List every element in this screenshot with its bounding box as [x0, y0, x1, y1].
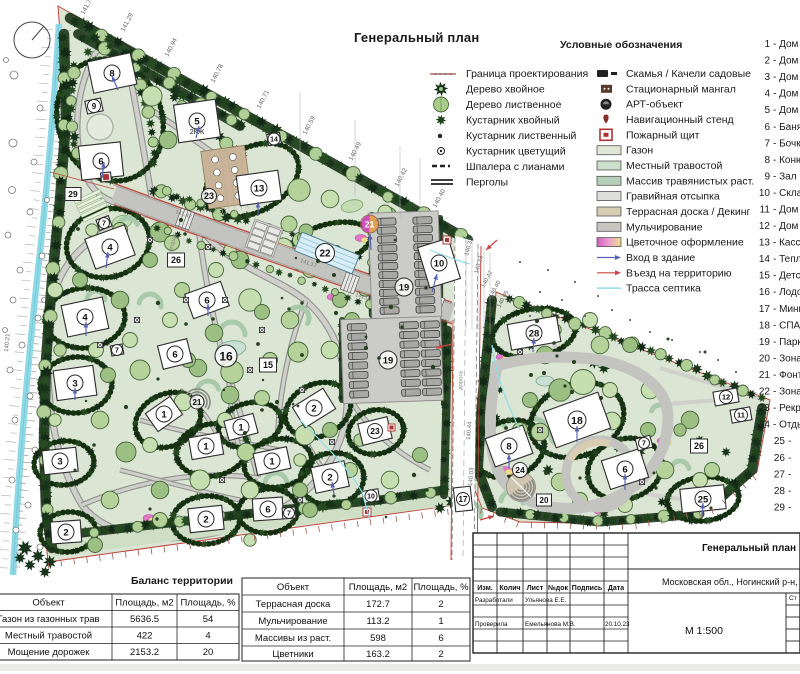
svg-text:6: 6 [265, 504, 270, 515]
svg-text:-: - [788, 436, 791, 447]
svg-text:Трасса септика: Трасса септика [626, 283, 701, 295]
svg-text:2: 2 [203, 514, 208, 525]
svg-text:163.2: 163.2 [366, 649, 390, 660]
svg-text:Стационарный мангал: Стационарный мангал [626, 83, 736, 95]
svg-text:Террасная доска / Декинг: Террасная доска / Декинг [626, 206, 751, 218]
svg-text:5636.5: 5636.5 [130, 614, 159, 625]
svg-text:Перголы: Перголы [466, 177, 508, 189]
svg-text:- Касса: - Касса [773, 238, 800, 249]
svg-text:7: 7 [287, 511, 291, 518]
svg-text:54: 54 [203, 614, 214, 625]
svg-text:Местный травостой: Местный травостой [626, 160, 722, 172]
svg-text:13: 13 [759, 238, 771, 249]
svg-text:-: - [788, 469, 791, 480]
svg-text:Объект: Объект [277, 582, 310, 593]
svg-text:2153.2: 2153.2 [130, 647, 159, 658]
svg-text:Массивы из раст.: Массивы из раст. [255, 633, 331, 644]
svg-text:2: 2 [764, 56, 770, 67]
svg-text:18: 18 [571, 415, 583, 427]
svg-text:598: 598 [370, 633, 386, 644]
svg-text:- СПА: - СПА [773, 320, 800, 331]
svg-text:10: 10 [759, 188, 771, 199]
svg-text:- Склад: - Склад [773, 188, 800, 199]
svg-text:2: 2 [438, 599, 443, 610]
svg-text:Цветочное оформление: Цветочное оформление [626, 237, 744, 249]
svg-text:16: 16 [759, 287, 771, 298]
svg-text:Баланс территории: Баланс территории [131, 575, 233, 587]
svg-text:- Зал: - Зал [773, 171, 797, 182]
svg-text:14: 14 [759, 254, 771, 265]
svg-text:- Дом: - Дом [773, 72, 799, 83]
svg-text:23: 23 [370, 426, 380, 436]
svg-text:140.49: 140.49 [348, 141, 364, 162]
svg-text:21: 21 [364, 220, 374, 230]
svg-text:28: 28 [774, 486, 786, 497]
svg-text:- Лодочная: - Лодочная [773, 287, 800, 298]
svg-text:4: 4 [764, 89, 770, 100]
svg-text:26: 26 [171, 255, 181, 265]
svg-text:Московская обл., Ногинский р-н: Московская обл., Ногинский р-н, п. Ел [662, 577, 800, 587]
svg-text:1: 1 [203, 441, 209, 452]
svg-text:Условные обозначения: Условные обозначения [560, 39, 682, 51]
svg-text:Шпалера с лианами: Шпалера с лианами [466, 161, 565, 173]
svg-text:9: 9 [92, 102, 97, 111]
svg-text:- Дом: - Дом [773, 89, 799, 100]
svg-text:1: 1 [764, 39, 770, 50]
svg-text:113.2: 113.2 [366, 616, 389, 627]
svg-text:17: 17 [759, 304, 771, 315]
svg-text:Гравийная отсыпка: Гравийная отсыпка [626, 191, 720, 203]
svg-text:2: 2 [327, 472, 332, 483]
svg-text:1: 1 [438, 616, 443, 627]
svg-text:Лист: Лист [527, 585, 544, 592]
svg-text:Навигационный стенд: Навигационный стенд [626, 114, 734, 126]
svg-text:10: 10 [367, 494, 375, 501]
svg-text:1: 1 [161, 409, 167, 420]
svg-text:3: 3 [72, 378, 77, 389]
svg-text:23: 23 [759, 403, 771, 414]
svg-text:Мульчирование: Мульчирование [626, 221, 703, 233]
svg-text:8: 8 [506, 441, 511, 452]
svg-text:422: 422 [137, 631, 153, 642]
svg-text:4: 4 [205, 631, 210, 642]
svg-text:Газон из газонных трав: Газон из газонных трав [0, 614, 100, 625]
svg-text:16: 16 [219, 350, 233, 364]
svg-text:Мощение дорожек: Мощение дорожек [8, 647, 91, 658]
svg-text:14: 14 [270, 137, 278, 144]
svg-text:Площадь, м2: Площадь, м2 [349, 582, 407, 593]
svg-text:11: 11 [760, 205, 771, 216]
svg-text:Объект: Объект [32, 598, 65, 609]
svg-text:- Дом: - Дом [773, 105, 799, 116]
svg-text:- Баня: - Баня [773, 122, 800, 133]
svg-text:13: 13 [254, 183, 265, 194]
svg-text:2: 2 [438, 649, 443, 660]
svg-text:20: 20 [203, 647, 214, 658]
svg-text:1: 1 [269, 456, 275, 467]
svg-text:18: 18 [759, 320, 771, 331]
svg-text:- Фонтан: - Фонтан [773, 370, 800, 381]
svg-text:Мульчирование: Мульчирование [258, 616, 327, 627]
svg-text:- Зона: - Зона [773, 353, 800, 364]
svg-text:- Конюшня: - Конюшня [773, 155, 800, 166]
svg-text:11: 11 [737, 411, 745, 420]
svg-text:дорога: дорога [458, 370, 465, 390]
svg-text:5: 5 [764, 105, 770, 116]
svg-text:140.42: 140.42 [394, 167, 410, 188]
svg-text:26: 26 [694, 441, 704, 451]
svg-text:21: 21 [193, 398, 202, 407]
svg-text:Генеральный план: Генеральный план [354, 30, 479, 45]
svg-text:141.79: 141.79 [80, 0, 96, 16]
svg-text:140.59: 140.59 [302, 115, 318, 136]
svg-text:21: 21 [759, 370, 771, 381]
svg-text:Дерево лиственное: Дерево лиственное [466, 99, 562, 111]
svg-text:5: 5 [194, 116, 200, 127]
svg-text:22: 22 [759, 387, 771, 398]
svg-text:17: 17 [459, 495, 468, 504]
svg-text:19: 19 [383, 356, 394, 367]
svg-text:Граница проектирования: Граница проектирования [466, 68, 588, 80]
svg-text:7: 7 [115, 348, 119, 355]
svg-text:6: 6 [622, 464, 627, 475]
svg-text:АРТ-объект: АРТ-объект [626, 99, 683, 111]
svg-text:-: - [788, 502, 791, 513]
svg-text:140.40: 140.40 [432, 188, 448, 209]
svg-text:24: 24 [759, 420, 771, 431]
svg-text:19: 19 [759, 337, 771, 348]
svg-text:25: 25 [774, 436, 786, 447]
svg-text:7: 7 [102, 221, 106, 228]
svg-text:140.21: 140.21 [4, 333, 12, 352]
svg-text:Площадь, м2: Площадь, м2 [115, 598, 173, 609]
svg-text:Газон: Газон [626, 145, 653, 157]
svg-text:- Рекреация: - Рекреация [773, 403, 800, 414]
svg-text:6: 6 [204, 295, 209, 306]
svg-text:Дата: Дата [608, 585, 624, 592]
svg-text:Генеральный план: Генеральный план [702, 543, 796, 554]
svg-text:12: 12 [759, 221, 771, 232]
svg-text:- Дом: - Дом [773, 39, 799, 50]
svg-text:140.71: 140.71 [256, 89, 272, 110]
svg-text:27: 27 [774, 469, 786, 480]
svg-text:7: 7 [764, 138, 770, 149]
svg-text:- Парковка: - Парковка [773, 337, 800, 348]
svg-text:Разработали: Разработали [475, 596, 513, 604]
svg-text:15: 15 [759, 271, 771, 282]
svg-text:20.10.23: 20.10.23 [605, 621, 630, 628]
svg-text:Подпись: Подпись [572, 585, 603, 592]
svg-text:Местный травостой: Местный травостой [5, 631, 92, 642]
svg-text:Площадь, %: Площадь, % [413, 582, 469, 593]
svg-text:- Детская: - Детская [773, 271, 800, 282]
svg-text:26: 26 [774, 453, 786, 464]
svg-text:9: 9 [764, 171, 770, 182]
svg-text:Пожарный щит: Пожарный щит [626, 129, 700, 141]
svg-text:23: 23 [204, 191, 214, 201]
svg-text:3: 3 [764, 72, 770, 83]
svg-text:141.29: 141.29 [120, 12, 136, 33]
svg-text:Проверила: Проверила [475, 621, 508, 628]
svg-text:172.7: 172.7 [366, 599, 390, 610]
svg-text:Скамья / Качели садовые: Скамья / Качели садовые [626, 68, 751, 80]
svg-text:3: 3 [57, 456, 62, 467]
svg-text:-: - [788, 486, 791, 497]
svg-text:19: 19 [399, 283, 410, 294]
svg-text:6: 6 [438, 633, 443, 644]
svg-text:24: 24 [515, 465, 525, 475]
svg-text:Въезд на территорию: Въезд на территорию [626, 267, 732, 279]
svg-text:15: 15 [263, 360, 273, 370]
svg-text:140.78: 140.78 [210, 63, 226, 84]
svg-text:М 1:500: М 1:500 [685, 625, 723, 637]
svg-text:Колич: Колич [499, 585, 520, 592]
svg-text:- Дом: - Дом [773, 56, 799, 67]
svg-text:Емельянова М.В.: Емельянова М.В. [525, 621, 576, 628]
svg-text:2: 2 [311, 403, 316, 414]
svg-text:12: 12 [722, 393, 730, 402]
svg-text:- Бочка: - Бочка [773, 138, 800, 149]
svg-text:29: 29 [68, 189, 78, 199]
svg-text:6: 6 [764, 122, 770, 133]
svg-text:- Дом: - Дом [773, 221, 799, 232]
svg-text:Кустарник лиственный: Кустарник лиственный [466, 130, 577, 142]
svg-text:Изм.: Изм. [477, 585, 493, 592]
svg-text:Вход в здание: Вход в здание [626, 252, 695, 264]
svg-text:140.42: 140.42 [480, 269, 494, 289]
svg-text:- Теплица: - Теплица [773, 254, 800, 265]
svg-text:Площадь, %: Площадь, % [180, 598, 236, 609]
svg-text:4: 4 [82, 312, 88, 323]
svg-text:7: 7 [642, 441, 646, 448]
svg-text:29: 29 [774, 502, 786, 513]
svg-text:8: 8 [764, 155, 770, 166]
svg-text:2: 2 [63, 527, 68, 538]
svg-text:6: 6 [172, 349, 177, 360]
svg-text:20: 20 [540, 496, 549, 505]
svg-text:140.94: 140.94 [164, 37, 180, 58]
svg-text:20: 20 [759, 353, 771, 364]
svg-text:- Зона: - Зона [773, 387, 800, 398]
svg-text:28: 28 [529, 328, 540, 339]
svg-text:-: - [788, 453, 791, 464]
svg-text:Массив травянистых раст.: Массив травянистых раст. [626, 175, 754, 187]
svg-text:Ст: Ст [789, 595, 797, 602]
svg-text:- Отдых: - Отдых [773, 420, 800, 431]
svg-text:Кустарник цветущий: Кустарник цветущий [466, 146, 566, 158]
svg-text:- Дом: - Дом [773, 205, 799, 216]
svg-text:Дерево хвойное: Дерево хвойное [466, 84, 545, 96]
svg-text:4: 4 [107, 242, 113, 253]
svg-text:Террасная доска: Террасная доска [256, 599, 331, 610]
svg-text:10: 10 [434, 258, 445, 269]
svg-text:Кустарник хвойный: Кустарник хвойный [466, 115, 560, 127]
svg-text:№док: №док [548, 584, 569, 592]
svg-text:Цветники: Цветники [272, 649, 313, 660]
svg-text:Ульянова Е.Е.: Ульянова Е.Е. [525, 597, 567, 604]
svg-text:- Мини-ферма: - Мини-ферма [773, 303, 800, 315]
svg-text:22: 22 [319, 249, 331, 260]
